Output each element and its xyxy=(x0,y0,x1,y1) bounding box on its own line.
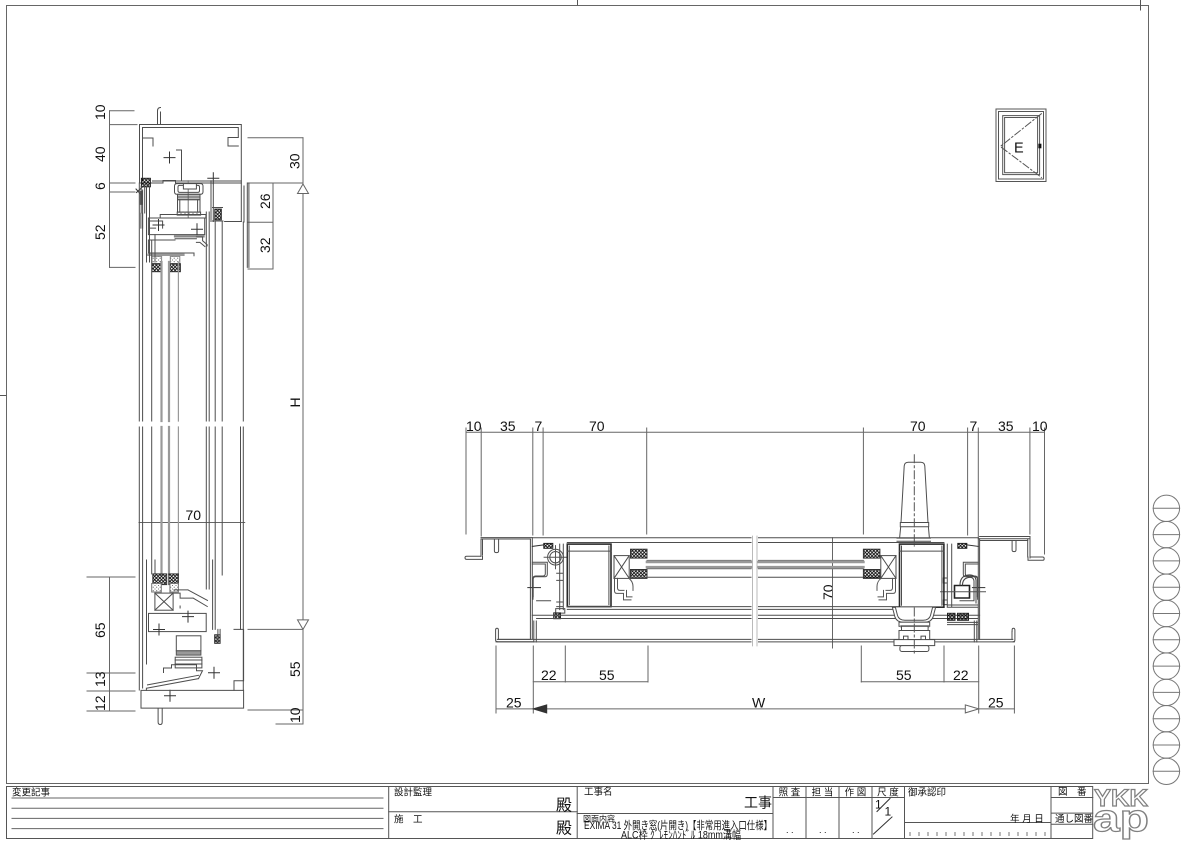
svg-text:殿: 殿 xyxy=(556,797,572,815)
svg-text:52: 52 xyxy=(92,224,108,240)
svg-text:70: 70 xyxy=(820,584,836,600)
svg-text:13: 13 xyxy=(92,671,108,687)
svg-text:6: 6 xyxy=(92,182,108,190)
svg-text:55: 55 xyxy=(896,667,912,683)
svg-text:55: 55 xyxy=(599,667,615,683)
svg-text:26: 26 xyxy=(257,193,273,209)
svg-text:25: 25 xyxy=(506,694,522,710)
svg-text:22: 22 xyxy=(541,667,557,683)
svg-text:. .: . . xyxy=(819,825,827,835)
svg-text:通し図番: 通し図番 xyxy=(1055,813,1094,825)
svg-text:35: 35 xyxy=(500,418,516,434)
svg-text:W: W xyxy=(752,694,766,710)
svg-text:40: 40 xyxy=(92,146,108,162)
svg-text:70: 70 xyxy=(589,418,605,434)
svg-text:7: 7 xyxy=(970,418,978,434)
svg-text:22: 22 xyxy=(953,667,969,683)
svg-text:70: 70 xyxy=(910,418,926,434)
svg-text:1: 1 xyxy=(885,805,892,819)
svg-text:65: 65 xyxy=(92,622,108,638)
svg-text:年 月 日: 年 月 日 xyxy=(1010,813,1044,825)
svg-text:工事: 工事 xyxy=(744,795,772,811)
svg-text:ALC枠 ｸﾞﾚﾓﾝﾊﾝﾄﾞﾙ 18mm溝幅: ALC枠 ｸﾞﾚﾓﾝﾊﾝﾄﾞﾙ 18mm溝幅 xyxy=(621,828,741,842)
svg-text:10: 10 xyxy=(92,104,108,120)
svg-text:殿: 殿 xyxy=(556,820,572,838)
svg-text:ap: ap xyxy=(1093,798,1149,840)
svg-text:35: 35 xyxy=(998,418,1014,434)
svg-text:E: E xyxy=(1014,141,1024,157)
svg-text:. .: . . xyxy=(852,825,860,835)
svg-text:作 図: 作 図 xyxy=(845,787,867,799)
svg-text:工事名: 工事名 xyxy=(584,786,613,798)
svg-text:変更記事: 変更記事 xyxy=(12,787,51,799)
svg-text:図 番: 図 番 xyxy=(1058,786,1087,798)
svg-text:設計監理: 設計監理 xyxy=(394,787,433,799)
svg-text:30: 30 xyxy=(287,153,303,169)
svg-text:32: 32 xyxy=(257,237,273,253)
svg-text:担 当: 担 当 xyxy=(812,787,834,799)
svg-text:25: 25 xyxy=(988,694,1004,710)
svg-text:10: 10 xyxy=(1032,418,1048,434)
svg-text:10: 10 xyxy=(287,707,303,723)
svg-text:12: 12 xyxy=(92,695,108,711)
svg-text:70: 70 xyxy=(186,507,202,523)
svg-text:. .: . . xyxy=(786,825,794,835)
svg-text:7: 7 xyxy=(535,418,543,434)
svg-text:H: H xyxy=(287,397,303,407)
svg-text:10: 10 xyxy=(466,418,482,434)
svg-text:55: 55 xyxy=(287,661,303,677)
svg-text:施 工: 施 工 xyxy=(394,814,423,826)
svg-text:照 査: 照 査 xyxy=(779,787,801,799)
svg-text:御承認印: 御承認印 xyxy=(908,787,946,799)
